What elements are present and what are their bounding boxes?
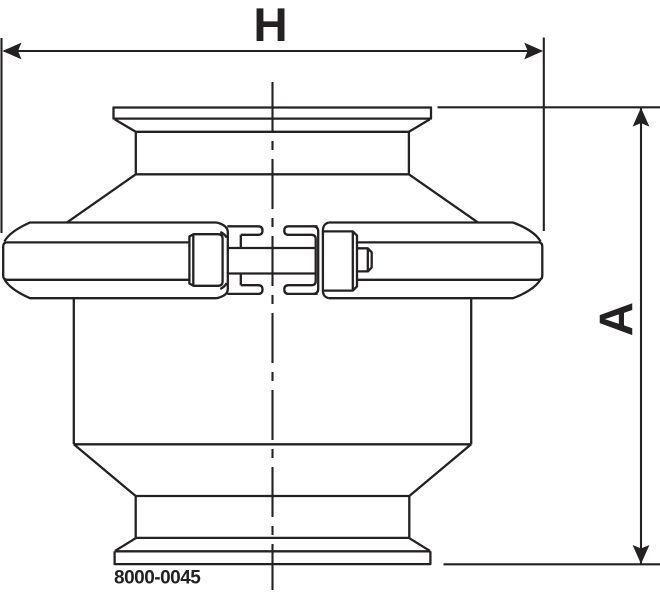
svg-text:8000-0045: 8000-0045 bbox=[114, 568, 201, 589]
svg-text:H: H bbox=[253, 0, 287, 52]
svg-text:A: A bbox=[591, 302, 644, 336]
